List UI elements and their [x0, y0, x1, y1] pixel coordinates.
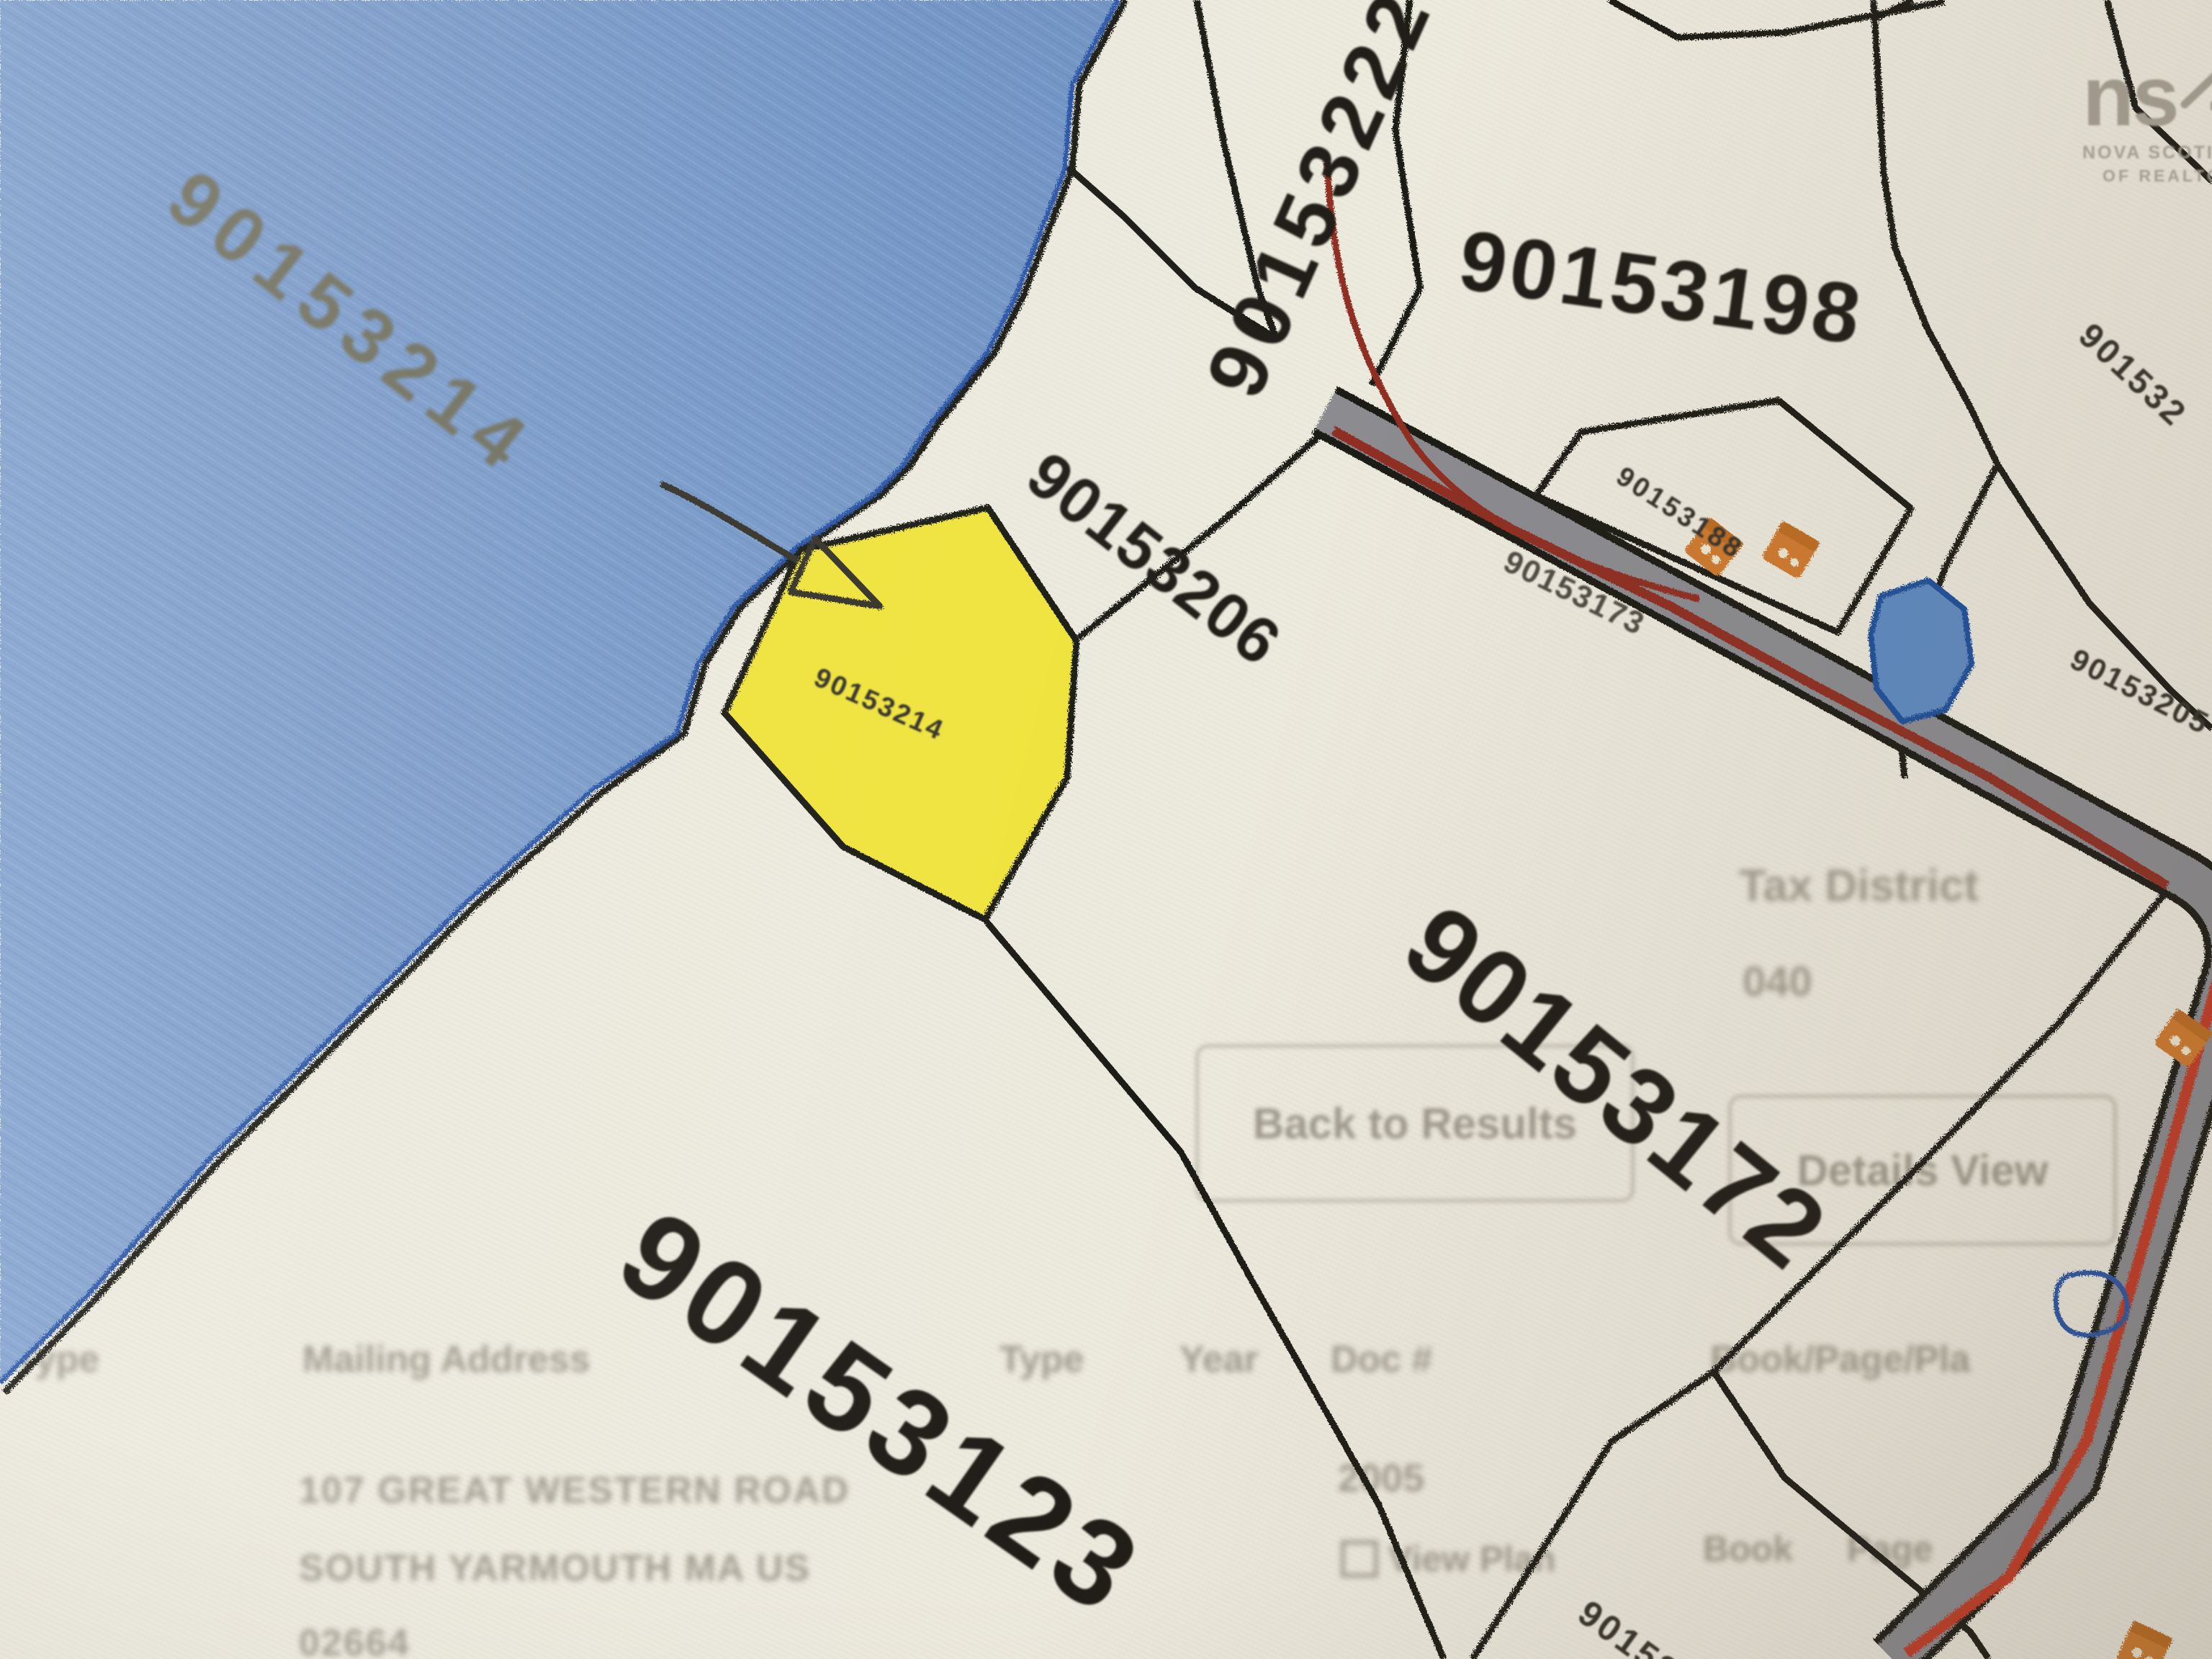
- house-icon: [2180, 67, 2212, 132]
- parcel-label-901532-clipped: 901532: [2071, 316, 2194, 434]
- parcel-map-svg: 90153214 90153214 90153222 90153206 9015…: [0, 0, 2212, 1659]
- parcel-label-90153172: 90153172: [1382, 881, 1850, 1292]
- logo-tagline-1: NOVA SCOTIA ASSOCIATION: [2082, 143, 2212, 163]
- map-photo: Tax District 040 Back to Results Details…: [0, 0, 2212, 1659]
- logo-tagline-2: OF REALTORS®: [2103, 166, 2212, 186]
- parcel-line-north-top1: [1609, 0, 1944, 37]
- logo-text-ns: ns: [2082, 60, 2177, 132]
- building-symbol-2: [1761, 521, 1820, 580]
- parcel-label-90153123: 90153123: [595, 1184, 1167, 1642]
- parcel-label-90153222: 90153222: [1189, 0, 1451, 410]
- building-symbol-4: [2116, 1620, 2173, 1659]
- pond: [1871, 580, 1972, 721]
- parcel-label-90153128: 90153128: [1571, 1593, 1743, 1659]
- nsar-logo: ns ar NOVA SCOTIA ASSOCIATION OF REALTOR…: [2082, 60, 2212, 186]
- parcel-label-90153198: 90153198: [1453, 212, 1869, 363]
- parcel-line-north-east: [1874, 0, 1997, 464]
